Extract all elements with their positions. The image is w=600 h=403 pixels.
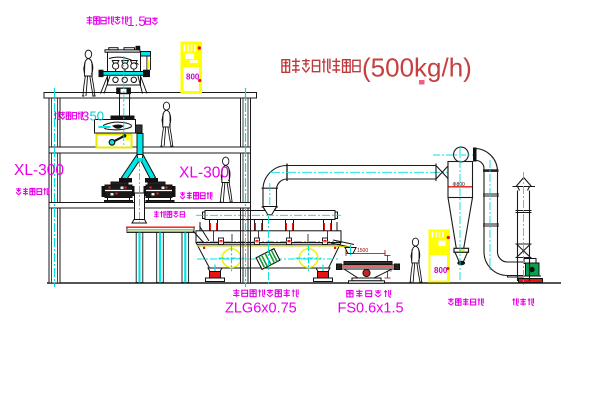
- svg-text:XL-300: XL-300: [14, 162, 64, 179]
- svg-text:800: 800: [186, 73, 200, 82]
- svg-text:1500: 1500: [357, 248, 368, 254]
- svg-text:FS0.6x1.5: FS0.6x1.5: [338, 301, 404, 317]
- svg-text:ZLG6x0.75: ZLG6x0.75: [225, 301, 297, 317]
- svg-text:800: 800: [434, 266, 448, 275]
- svg-text:(500kg/h): (500kg/h): [362, 53, 472, 83]
- svg-text:3: 3: [82, 109, 89, 124]
- svg-text:XL-300: XL-300: [179, 165, 229, 182]
- svg-text:Φ800: Φ800: [453, 182, 466, 188]
- svg-text:50: 50: [90, 109, 104, 124]
- svg-text:1.5: 1.5: [127, 14, 146, 29]
